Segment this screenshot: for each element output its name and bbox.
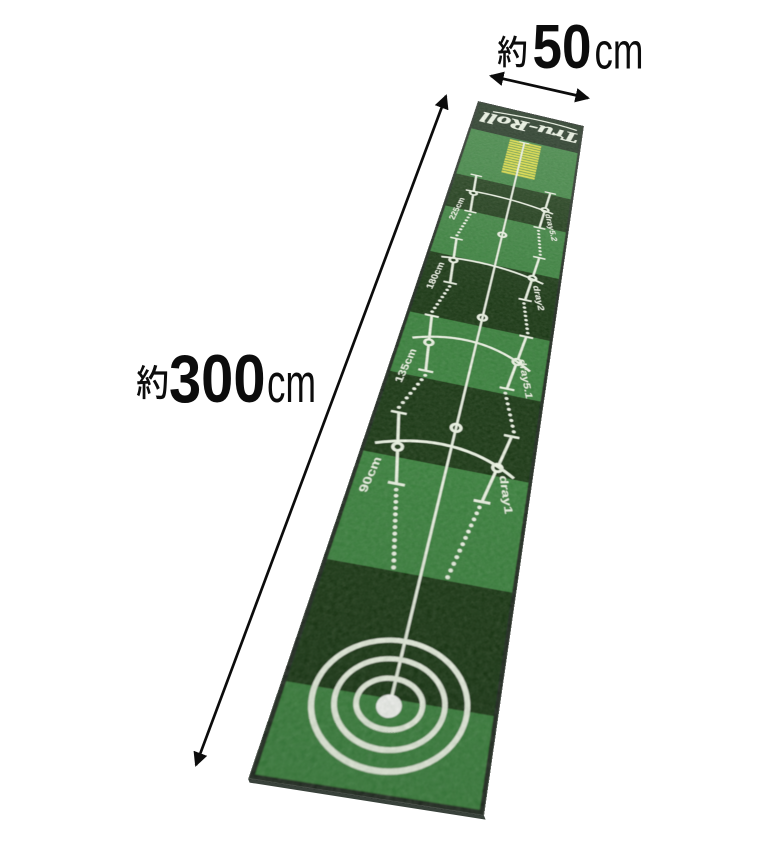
svg-text:300: 300 bbox=[169, 342, 265, 417]
svg-text:cm: cm bbox=[595, 24, 644, 80]
svg-text:cm: cm bbox=[267, 353, 316, 414]
svg-text:50: 50 bbox=[533, 13, 592, 82]
